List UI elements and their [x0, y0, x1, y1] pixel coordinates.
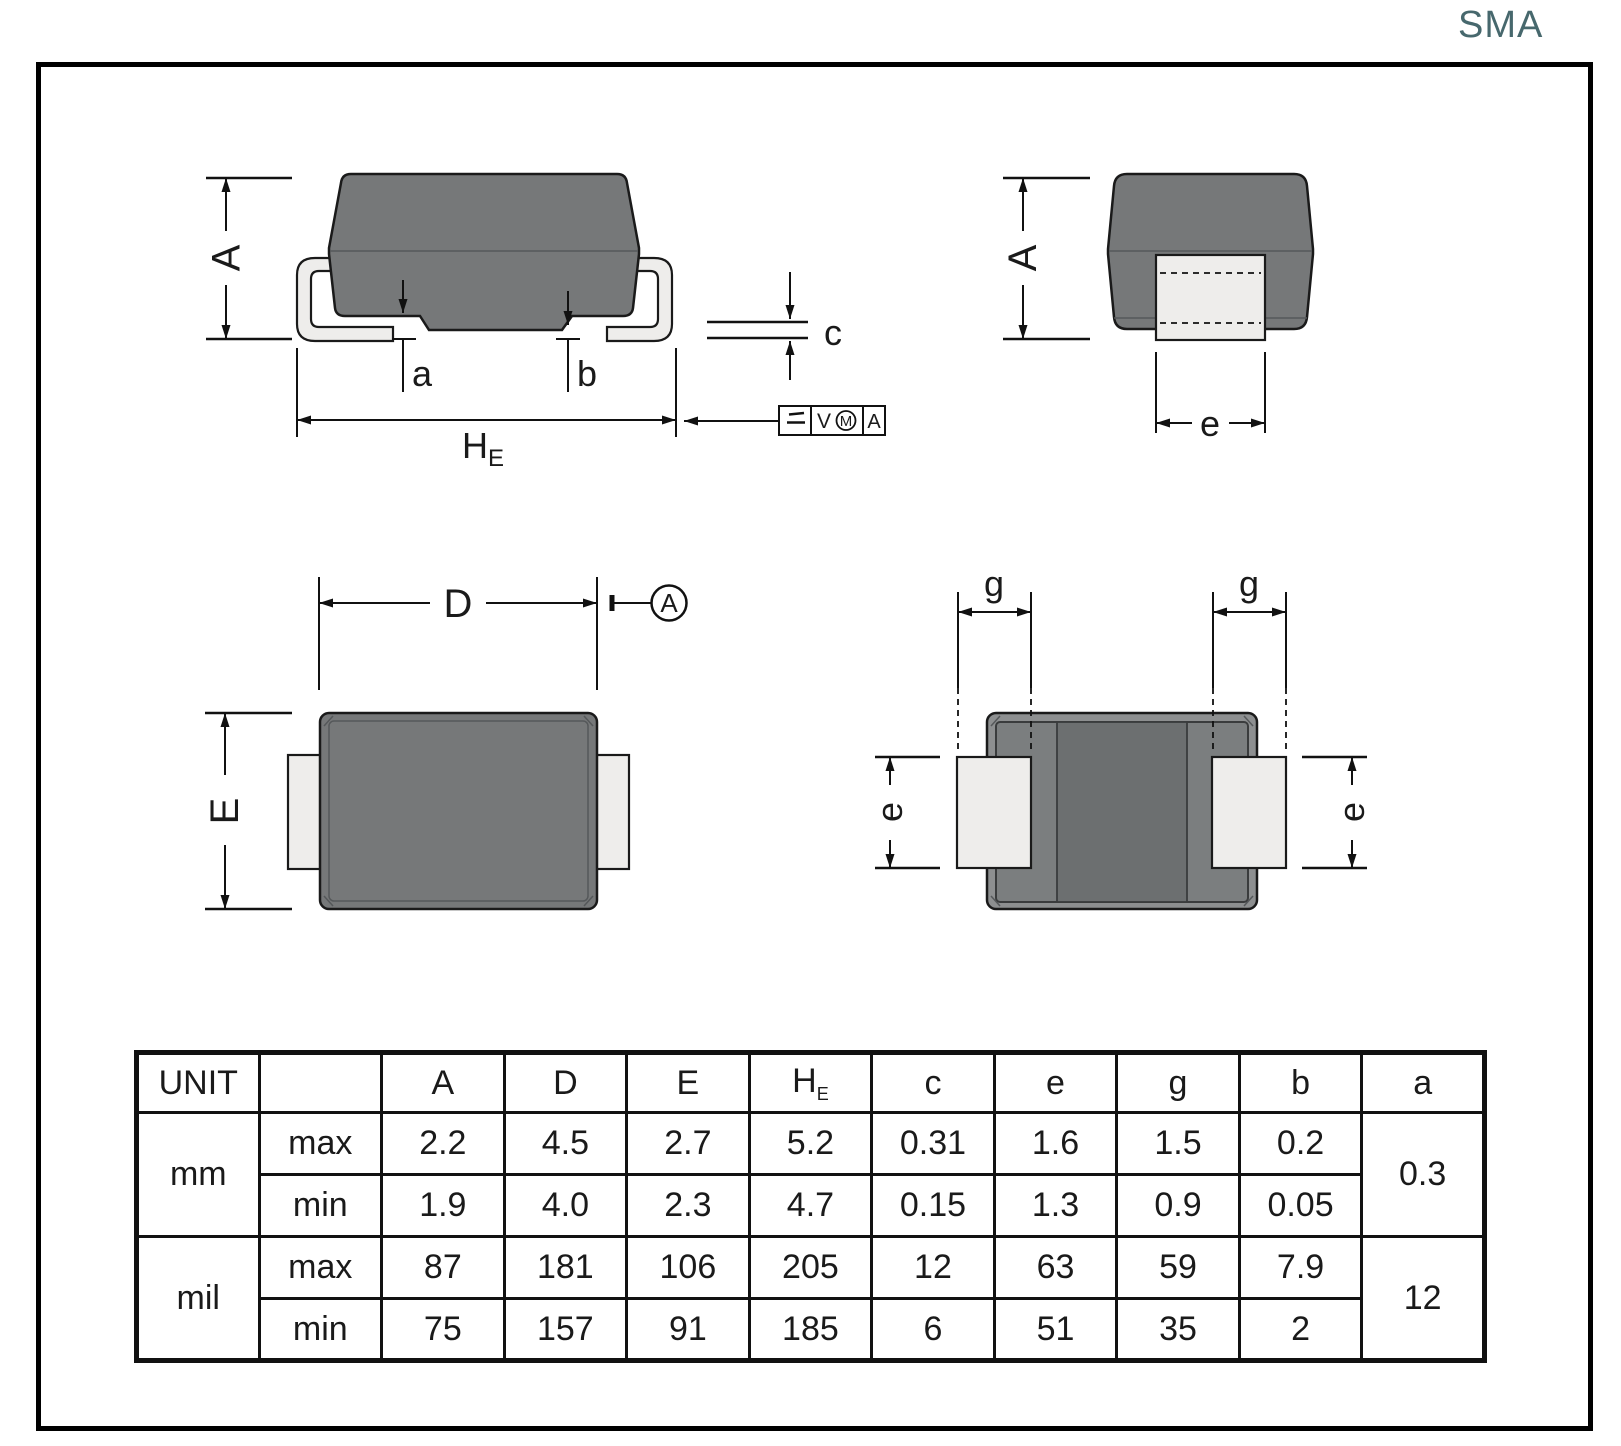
end-view: A e	[1001, 174, 1313, 444]
dimension-table-wrap: UNIT A D E HE c e g b a mm max 2.2 4.5 2…	[134, 1050, 1487, 1363]
cell-mil-min-D: 157	[504, 1299, 627, 1361]
datum-a-flag: A	[612, 586, 687, 621]
cell-mm-min-A: 1.9	[382, 1175, 505, 1237]
cell-mil-max-E: 106	[627, 1237, 750, 1299]
cell-mm-min-HE: 4.7	[749, 1175, 872, 1237]
dim-e-left: e	[869, 757, 940, 868]
cell-mil-a: 12	[1362, 1237, 1485, 1361]
fcf-datum-a: A	[867, 411, 881, 433]
cell-mil-min-c: 6	[872, 1299, 995, 1361]
dim-label-e2: e	[869, 802, 910, 822]
top-view: D A E	[203, 577, 687, 909]
cell-mm-min-E: 2.3	[627, 1175, 750, 1237]
top-view-body	[320, 713, 597, 909]
dim-label-E: E	[203, 798, 247, 825]
cell-mm-max-b: 0.2	[1239, 1113, 1362, 1175]
dim-label-g2: g	[1239, 563, 1259, 604]
unit-mm: mm	[137, 1113, 260, 1237]
header-col-e: e	[994, 1053, 1117, 1113]
dimension-table: UNIT A D E HE c e g b a mm max 2.2 4.5 2…	[134, 1050, 1487, 1363]
cell-mil-max-c: 12	[872, 1237, 995, 1299]
dim-e-right: e	[1302, 757, 1372, 868]
cell-mm-max-HE: 5.2	[749, 1113, 872, 1175]
cell-mm-max-E: 2.7	[627, 1113, 750, 1175]
cell-mm-max-c: 0.31	[872, 1113, 995, 1175]
cell-mm-min-e: 1.3	[994, 1175, 1117, 1237]
dim-E: E	[203, 713, 292, 909]
cell-mil-min-E: 91	[627, 1299, 750, 1361]
dim-label-g1: g	[984, 563, 1004, 604]
header-col-E: E	[627, 1053, 750, 1113]
dim-D: D	[319, 577, 597, 690]
bottom-view: g g e	[869, 563, 1372, 909]
cell-mm-a: 0.3	[1362, 1113, 1485, 1237]
cell-mil-min-A: 75	[382, 1299, 505, 1361]
header-col-a: a	[1362, 1053, 1485, 1113]
cell-mm-min-c: 0.15	[872, 1175, 995, 1237]
bottom-view-left-pad	[957, 757, 1031, 868]
unit-mil: mil	[137, 1237, 260, 1361]
cell-mm-max-A: 2.2	[382, 1113, 505, 1175]
dim-label-e1: e	[1200, 403, 1220, 444]
dim-HE: HE	[297, 348, 676, 472]
cell-mil-max-A: 87	[382, 1237, 505, 1299]
cell-mil-max-g: 59	[1117, 1237, 1240, 1299]
cell-mil-max-b: 7.9	[1239, 1237, 1362, 1299]
header-col-g: g	[1117, 1053, 1240, 1113]
cell-mm-max-g: 1.5	[1117, 1113, 1240, 1175]
bound-mm-min: min	[259, 1175, 382, 1237]
drawing-sheet: SMA A	[0, 0, 1621, 1446]
dim-label-D: D	[444, 582, 473, 626]
dim-label-e3: e	[1331, 802, 1372, 822]
row-mm-max: mm max 2.2 4.5 2.7 5.2 0.31 1.6 1.5 0.2 …	[137, 1113, 1485, 1175]
header-col-D: D	[504, 1053, 627, 1113]
bottom-view-right-pad	[1212, 757, 1286, 868]
cell-mm-max-D: 4.5	[504, 1113, 627, 1175]
header-unit: UNIT	[137, 1053, 260, 1113]
cell-mm-min-D: 4.0	[504, 1175, 627, 1237]
dim-e-end: e	[1156, 352, 1265, 444]
row-mil-min: min 75 157 91 185 6 51 35 2	[137, 1299, 1485, 1361]
dim-label-HE: HE	[462, 425, 504, 472]
datum-a-letter: A	[660, 588, 678, 618]
header-col-A: A	[382, 1053, 505, 1113]
fcf-modifier-m: M	[840, 413, 853, 430]
bound-mm-max: max	[259, 1113, 382, 1175]
cell-mm-max-e: 1.6	[994, 1113, 1117, 1175]
bottom-view-center-pad	[1057, 722, 1187, 902]
dim-label-A2: A	[1001, 244, 1045, 271]
side-view-body	[329, 174, 639, 330]
bound-mil-max: max	[259, 1237, 382, 1299]
feature-control-frame: V M A	[684, 406, 885, 435]
cell-mil-min-HE: 185	[749, 1299, 872, 1361]
row-mil-max: mil max 87 181 106 205 12 63 59 7.9 12	[137, 1237, 1485, 1299]
dim-label-A: A	[205, 244, 249, 271]
header-col-HE: HE	[749, 1053, 872, 1113]
cell-mil-max-D: 181	[504, 1237, 627, 1299]
dim-label-c: c	[824, 312, 842, 353]
bound-mil-min: min	[259, 1299, 382, 1361]
row-mm-min: min 1.9 4.0 2.3 4.7 0.15 1.3 0.9 0.05	[137, 1175, 1485, 1237]
top-view-right-lead	[596, 755, 629, 869]
header-blank	[259, 1053, 382, 1113]
header-col-b: b	[1239, 1053, 1362, 1113]
dim-A-end: A	[1001, 178, 1090, 339]
dim-label-a: a	[412, 353, 433, 394]
dim-A-side: A	[205, 178, 293, 339]
cell-mil-max-HE: 205	[749, 1237, 872, 1299]
cell-mm-min-g: 0.9	[1117, 1175, 1240, 1237]
end-view-lead	[1156, 255, 1265, 340]
header-col-c: c	[872, 1053, 995, 1113]
side-view: A a b HE	[205, 174, 886, 472]
cell-mm-min-b: 0.05	[1239, 1175, 1362, 1237]
cell-mil-max-e: 63	[994, 1237, 1117, 1299]
dim-label-b: b	[577, 353, 597, 394]
cell-mil-min-g: 35	[1117, 1299, 1240, 1361]
cell-mil-min-b: 2	[1239, 1299, 1362, 1361]
top-view-left-lead	[288, 755, 321, 869]
cell-mil-min-e: 51	[994, 1299, 1117, 1361]
dim-c: c	[707, 272, 842, 380]
fcf-tolerance-v: V	[817, 410, 831, 433]
